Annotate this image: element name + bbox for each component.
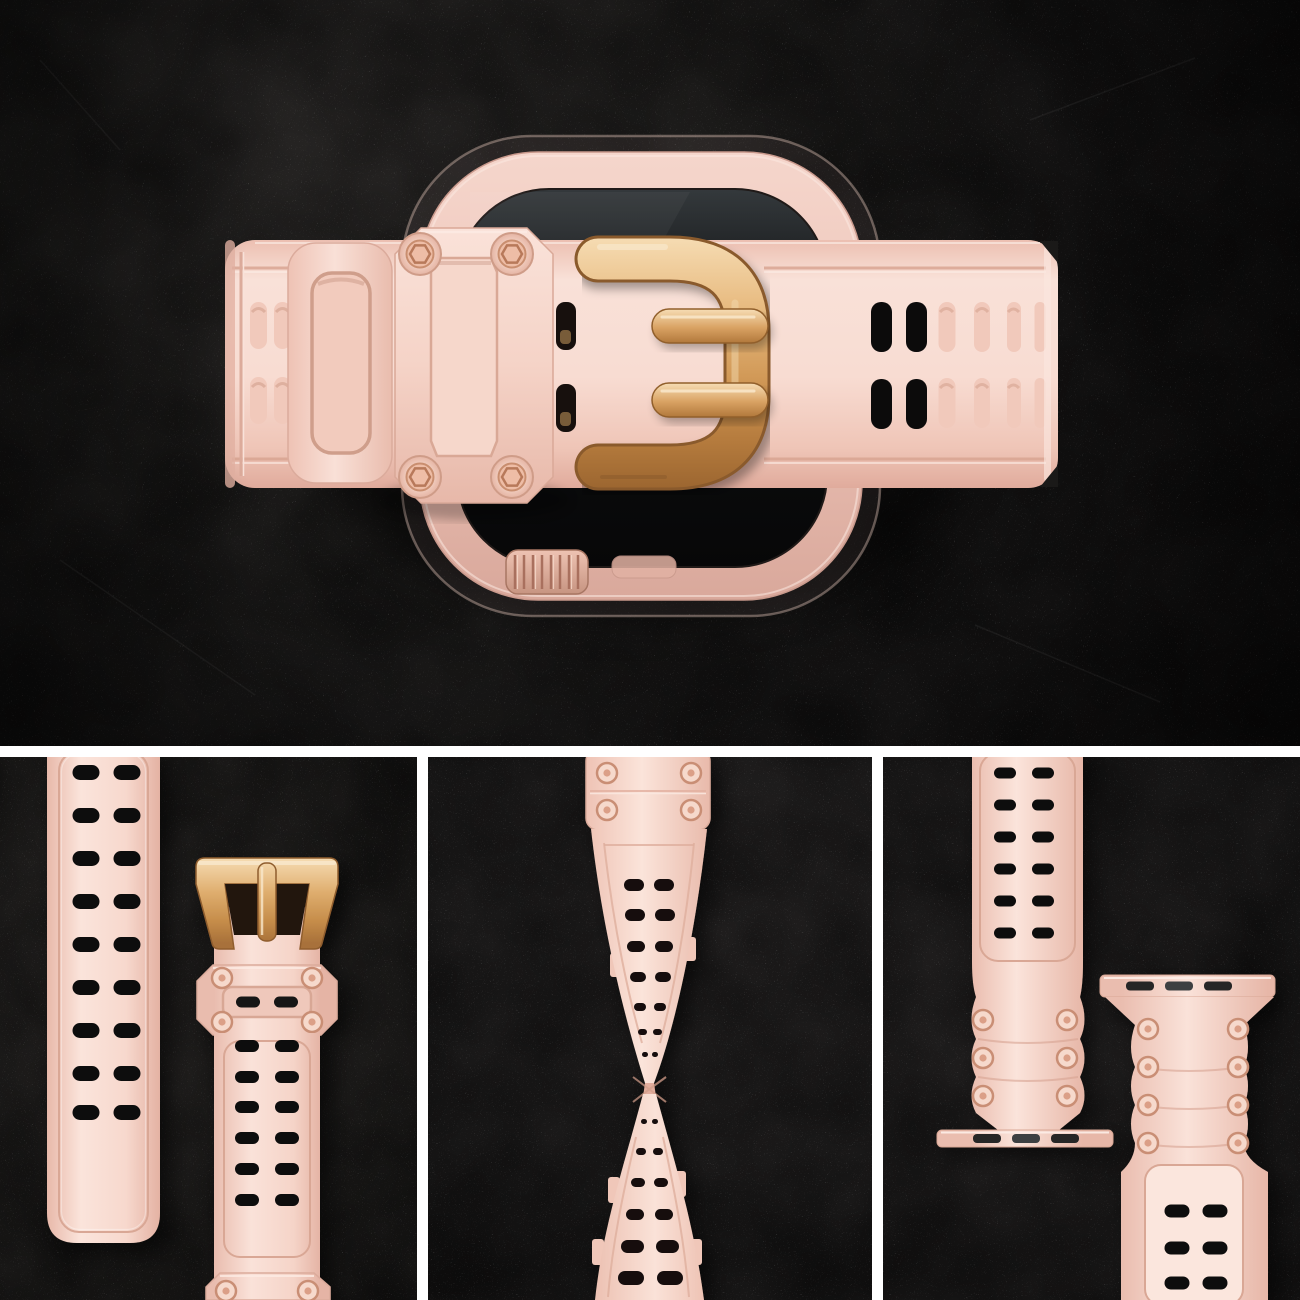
horizontal-divider	[0, 746, 1300, 757]
detail-connectors-art	[883, 757, 1300, 1300]
hero-panel	[0, 0, 1300, 746]
detail-connectors-panel	[883, 757, 1300, 1300]
vertical-divider-left	[417, 757, 428, 1300]
strap-below-keeper	[214, 1033, 320, 1300]
buckle-tongue	[258, 863, 276, 941]
front-buckle	[196, 858, 338, 949]
armor-keeper	[197, 965, 337, 1035]
detail-strap-art	[0, 757, 417, 1300]
vignette	[0, 0, 1300, 746]
detail-flex-panel	[428, 757, 872, 1300]
hero-art	[0, 0, 1300, 746]
watch-lug-connector	[937, 1130, 1113, 1147]
watch-lug-connector	[1100, 975, 1275, 997]
buckle-strap-assembly	[196, 858, 338, 1300]
collage-stage	[0, 0, 1300, 1300]
perforated-strap-tail	[47, 757, 160, 1243]
strap-plate-groove	[1145, 1165, 1243, 1300]
lower-armor-keeper	[206, 1273, 330, 1300]
vertical-divider-right	[872, 757, 883, 1300]
detail-strap-panel	[0, 757, 417, 1300]
detail-flex-art	[428, 757, 872, 1300]
